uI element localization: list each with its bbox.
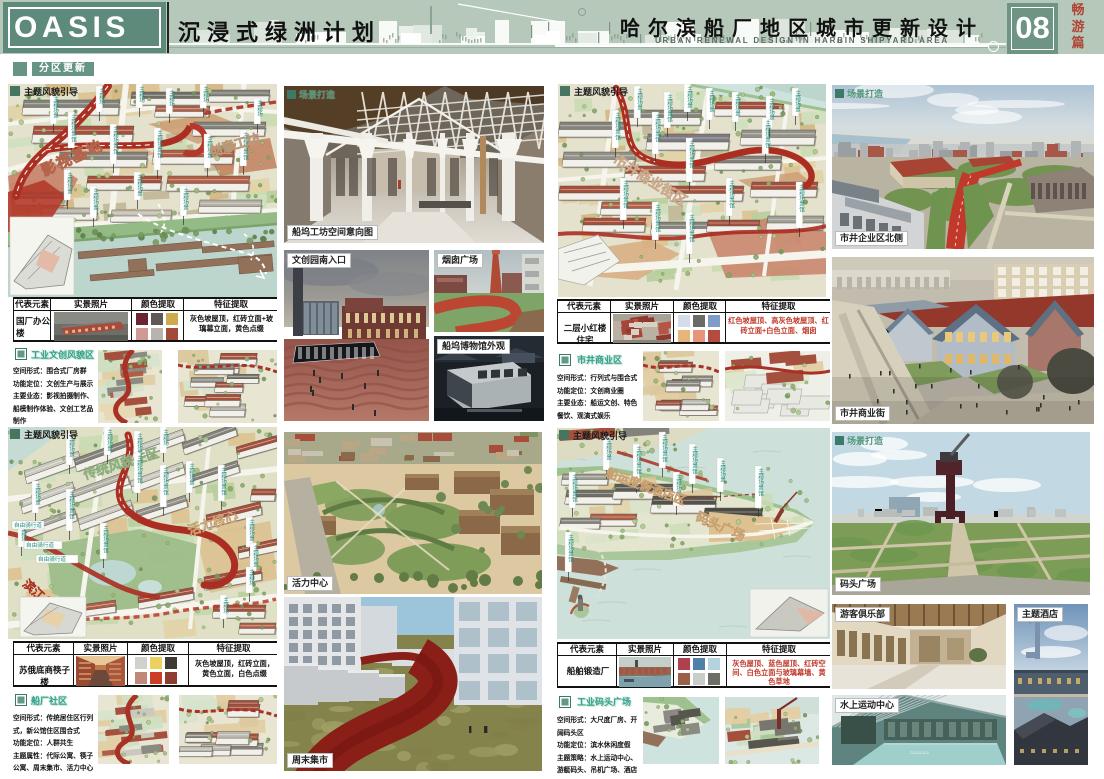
svg-text:主题场景: 主题场景 (794, 89, 801, 114)
svg-text:主题场景馆: 主题场景馆 (102, 524, 109, 554)
svg-text:主题场景: 主题场景 (768, 97, 775, 122)
svg-text:主题场景馆: 主题场景馆 (162, 466, 169, 496)
svg-text:主题场景馆: 主题场景馆 (728, 179, 735, 209)
svg-text:≈≈≈≈≈: ≈≈≈≈≈ (910, 750, 929, 757)
svg-text:主题场景馆: 主题场景馆 (757, 467, 764, 497)
svg-text:主题场景馆: 主题场景馆 (112, 125, 119, 155)
svg-text:主题场景: 主题场景 (248, 518, 255, 543)
svg-text:主题场景馆: 主题场景馆 (68, 490, 75, 520)
svg-text:主题场: 主题场 (256, 99, 263, 118)
svg-text:主题场景馆: 主题场景馆 (571, 473, 578, 503)
svg-text:自由骑行道: 自由骑行道 (38, 555, 66, 563)
svg-text:主题场: 主题场 (202, 85, 209, 104)
svg-text:主题场景馆: 主题场景馆 (635, 445, 642, 475)
svg-text:主题场景: 主题场景 (34, 482, 41, 507)
svg-text:主题场: 主题场 (98, 87, 105, 106)
svg-text:主题场景: 主题场景 (188, 462, 195, 487)
svg-text:主题风貌引导: 主题风貌引导 (24, 429, 78, 440)
svg-text:主题场景: 主题场景 (719, 459, 726, 484)
svg-text:主题场景馆: 主题场景馆 (614, 111, 621, 141)
svg-text:主题场景: 主题场景 (136, 173, 143, 198)
svg-text:主题场景馆: 主题场景馆 (136, 454, 143, 484)
svg-text:主题场景: 主题场景 (708, 89, 715, 114)
svg-text:主题风貌引导: 主题风貌引导 (573, 430, 627, 441)
svg-text:主题场: 主题场 (248, 568, 255, 587)
svg-text:主题场景: 主题场景 (252, 544, 259, 569)
svg-text:自由骑行道: 自由骑行道 (26, 541, 54, 549)
svg-text:主题场景馆: 主题场景馆 (688, 213, 695, 243)
svg-text:主题场景: 主题场景 (636, 87, 643, 112)
svg-text:主题风貌引导: 主题风貌引导 (574, 86, 628, 97)
svg-text:主题场: 主题场 (138, 85, 145, 104)
svg-text:主题场景馆: 主题场景馆 (70, 113, 77, 143)
svg-text:主题场: 主题场 (162, 428, 169, 447)
svg-text:主题场: 主题场 (222, 596, 229, 615)
svg-text:主题场: 主题场 (168, 89, 175, 108)
svg-text:主题场景馆: 主题场景馆 (567, 533, 574, 563)
svg-text:主题场景: 主题场景 (92, 187, 99, 212)
svg-text:主题风貌引导: 主题风貌引导 (24, 86, 78, 97)
svg-text:主题场景: 主题场景 (686, 85, 693, 110)
svg-text:主题场景: 主题场景 (106, 428, 113, 453)
svg-text:主题场景馆: 主题场景馆 (666, 93, 673, 123)
svg-text:主题场景馆: 主题场景馆 (622, 179, 629, 209)
svg-text:主题场景馆: 主题场景馆 (654, 113, 661, 143)
svg-text:主题场景馆: 主题场景馆 (764, 119, 771, 149)
svg-text:主题场景馆: 主题场景馆 (691, 445, 698, 475)
svg-text:主题场景馆: 主题场景馆 (661, 433, 668, 463)
svg-text:主题场景: 主题场景 (734, 93, 741, 118)
svg-text:自由骑行道: 自由骑行道 (14, 521, 42, 529)
svg-text:主题场景馆: 主题场景馆 (156, 129, 163, 159)
svg-text:主题场景馆: 主题场景馆 (688, 139, 695, 169)
svg-text:主题场景: 主题场景 (182, 187, 189, 212)
svg-text:主题场景馆: 主题场景馆 (654, 203, 661, 233)
svg-text:主题场景: 主题场景 (66, 171, 73, 196)
svg-text:主题场景馆: 主题场景馆 (798, 183, 805, 213)
svg-text:主题场景馆: 主题场景馆 (220, 466, 227, 496)
svg-text:主题场景: 主题场景 (52, 95, 59, 120)
